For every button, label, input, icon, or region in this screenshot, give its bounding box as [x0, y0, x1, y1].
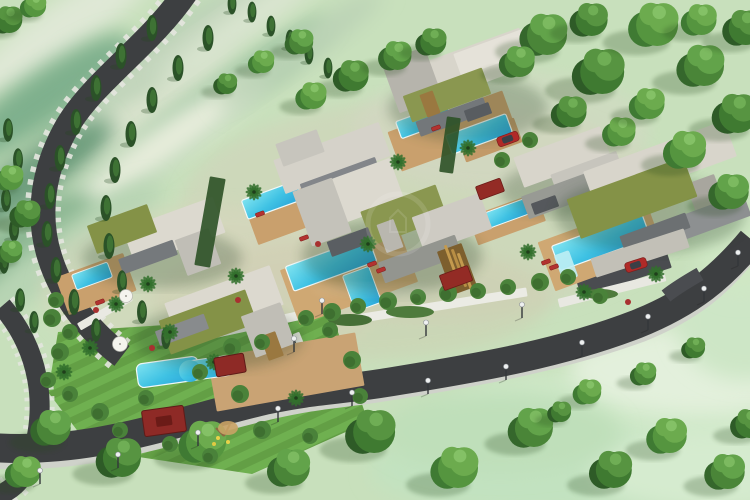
scene-canvas [0, 0, 750, 500]
aerial-villa-render [0, 0, 750, 500]
